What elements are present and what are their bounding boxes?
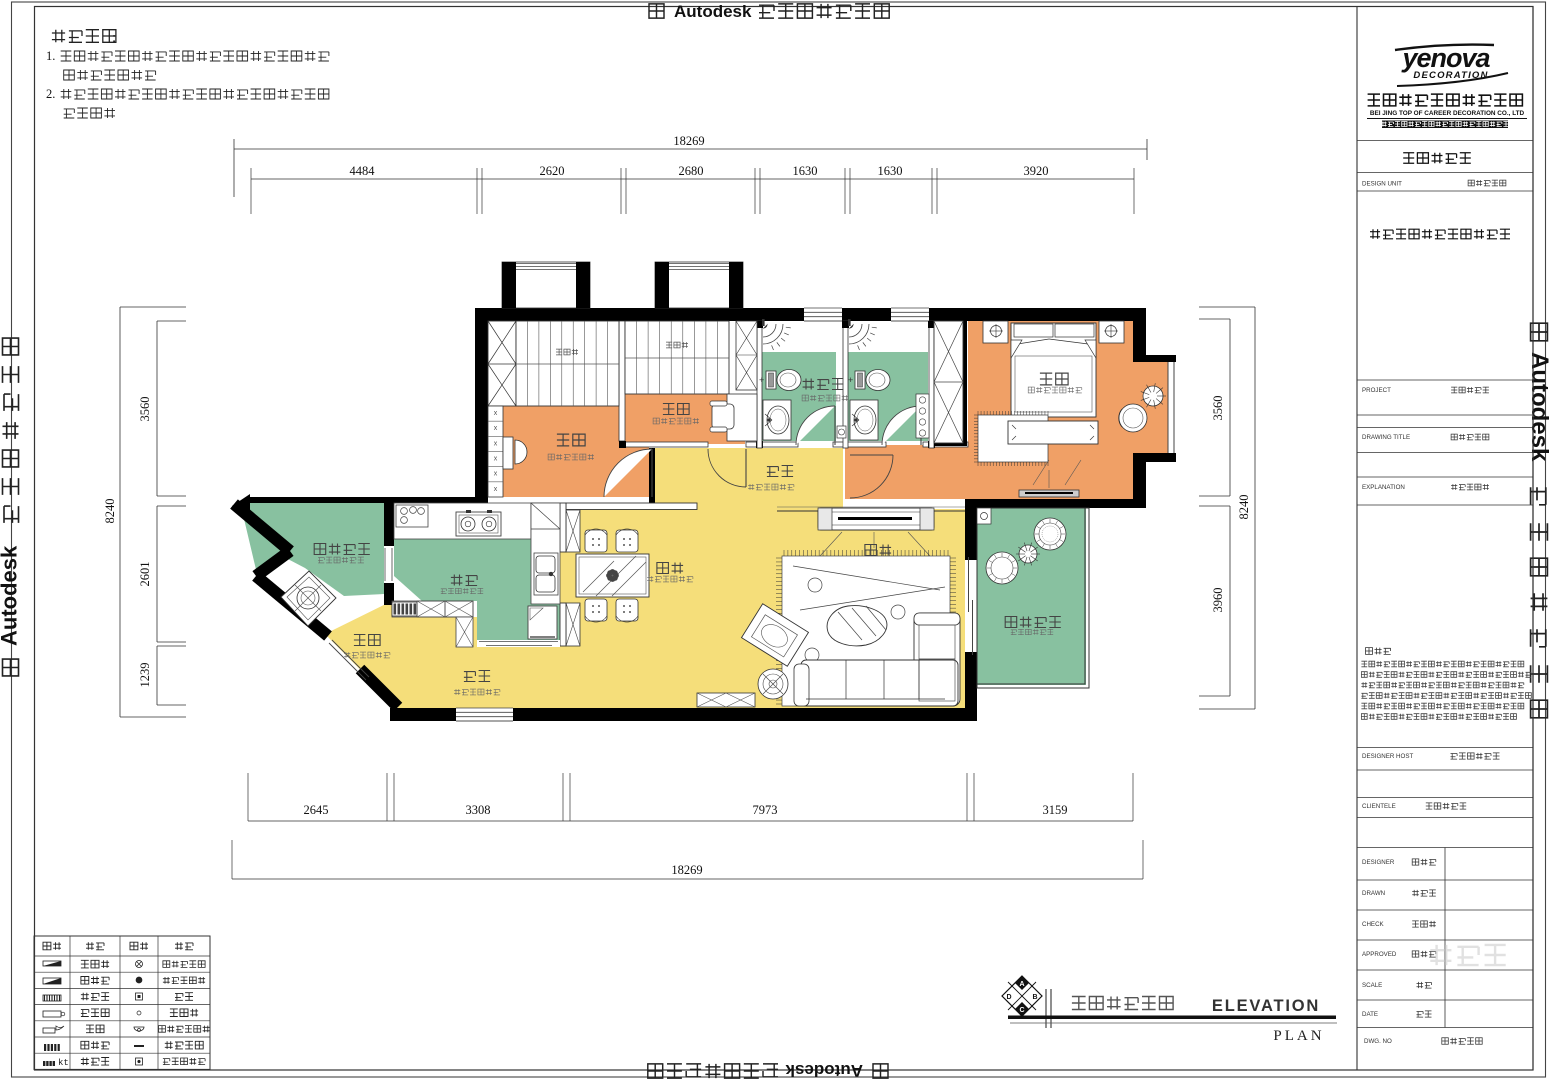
svg-text:4484: 4484 [350,164,376,178]
svg-text:yenova: yenova [1400,43,1490,73]
svg-text::: : [112,30,116,46]
svg-text:x: x [494,456,498,463]
svg-text:3560: 3560 [138,397,152,422]
svg-text:+: + [759,375,764,385]
svg-text:Autodesk: Autodesk [674,2,752,21]
svg-text:3308: 3308 [466,803,491,817]
svg-text:A: A [1019,981,1024,988]
svg-text:Autodesk: Autodesk [0,545,22,646]
svg-text:3560: 3560 [1211,396,1225,421]
svg-text:18269: 18269 [673,134,704,148]
svg-text:DESIGNER: DESIGNER [1362,859,1395,866]
svg-text:x: x [494,410,498,417]
svg-text:CLIENTELE: CLIENTELE [1362,803,1396,810]
svg-text:3159: 3159 [1043,803,1068,817]
svg-text:ELEVATION: ELEVATION [1212,997,1320,1015]
svg-text:EXPLANATION: EXPLANATION [1362,484,1405,491]
svg-text:18269: 18269 [671,863,702,877]
svg-text:x: x [494,471,498,478]
svg-text:DRAWING TITLE: DRAWING TITLE [1362,434,1410,441]
svg-text:x: x [494,486,498,493]
svg-text:DATE: DATE [1362,1011,1378,1018]
svg-text:8240: 8240 [103,499,117,524]
svg-text:1630: 1630 [878,164,903,178]
svg-text:DESIGN UNIT: DESIGN UNIT [1362,181,1402,188]
svg-text:PROJECT: PROJECT [1362,387,1391,394]
svg-text:SCALE: SCALE [1362,982,1382,989]
svg-text:B: B [1032,994,1037,1001]
svg-text:1239: 1239 [138,663,152,688]
svg-text:Autodesk: Autodesk [785,1061,863,1080]
svg-text:x: x [494,425,498,432]
svg-text:kt: kt [58,1058,69,1068]
svg-text:2601: 2601 [138,562,152,587]
svg-text:x: x [494,440,498,447]
svg-text:PLAN: PLAN [1273,1028,1324,1044]
svg-text:2620: 2620 [540,164,565,178]
svg-text:BEI JING TOP OF CAREER DECORAT: BEI JING TOP OF CAREER DECORATION CO., L… [1370,110,1525,117]
svg-text:7973: 7973 [753,803,778,817]
svg-text:CHECK: CHECK [1362,921,1385,928]
svg-text:APPROVED: APPROVED [1362,951,1397,958]
svg-text:Autodesk: Autodesk [1526,352,1549,462]
svg-text:3960: 3960 [1211,588,1225,613]
svg-text:3920: 3920 [1024,164,1049,178]
svg-text:C: C [1019,1007,1024,1014]
svg-text:D: D [1006,994,1011,1001]
svg-text:1630: 1630 [793,164,818,178]
svg-text:DWG. NO: DWG. NO [1364,1038,1392,1045]
svg-text:8240: 8240 [1237,495,1251,520]
svg-text:2645: 2645 [304,803,329,817]
svg-text:2.: 2. [46,87,55,101]
svg-text:+: + [848,375,853,385]
svg-text:1.: 1. [46,49,55,63]
svg-text:DESIGNER HOST: DESIGNER HOST [1362,753,1413,760]
svg-text:2680: 2680 [679,164,704,178]
svg-text:DRAWN: DRAWN [1362,890,1385,897]
